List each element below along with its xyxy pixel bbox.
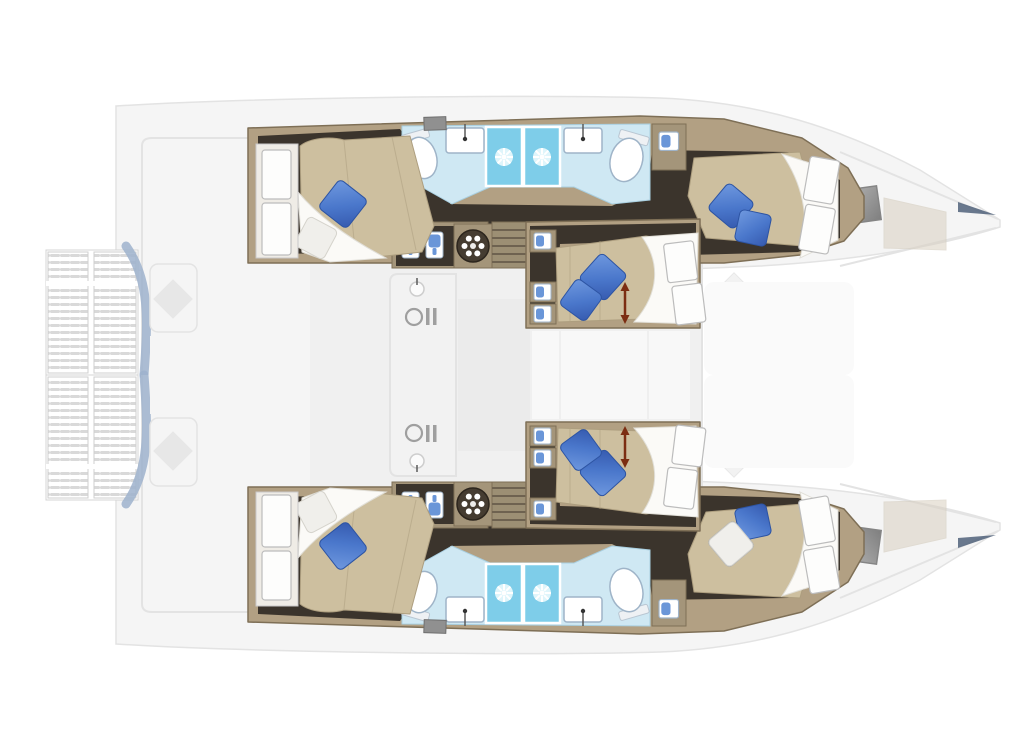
- boat-half: [46, 96, 1000, 375]
- bed-aft: [294, 136, 434, 262]
- platform-slats-left: [48, 252, 88, 373]
- round-hatch-icon: [454, 224, 492, 268]
- platform-slats-right: [94, 252, 136, 373]
- salon-sofa: [458, 299, 530, 375]
- catamaran-floor-plan: [0, 0, 1024, 750]
- floor-plan-canvas: [0, 0, 1024, 750]
- cockpit-bench: [150, 336, 194, 375]
- pillow-blue: [734, 209, 772, 247]
- sink-fwd: [564, 124, 602, 153]
- stern-platform: [46, 250, 138, 375]
- sink-aft: [446, 124, 484, 153]
- platform-divider: [46, 281, 138, 286]
- salon-table: [532, 331, 690, 375]
- bed-mid: [556, 233, 706, 326]
- wardrobe-aft: [256, 144, 298, 258]
- foredeck-lounge: [704, 282, 854, 375]
- mid-cabin: [526, 219, 706, 328]
- hanging-locker: [652, 124, 686, 170]
- deck-hatch-small: [424, 117, 446, 131]
- cockpit-faded: [150, 264, 197, 375]
- boat-half-mirrored: [46, 375, 1000, 654]
